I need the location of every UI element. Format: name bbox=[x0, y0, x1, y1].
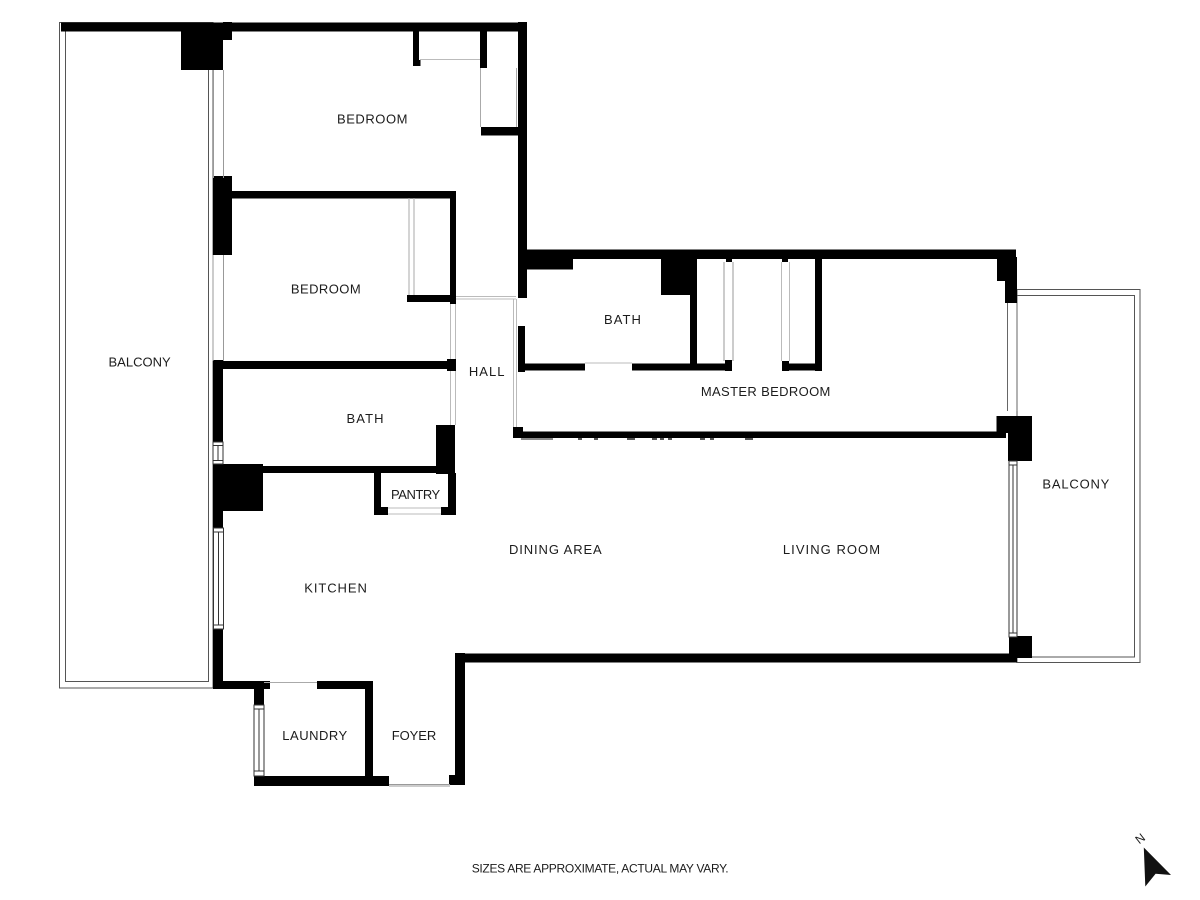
svg-text:BATH: BATH bbox=[347, 411, 385, 426]
svg-text:DINING AREA: DINING AREA bbox=[509, 542, 603, 557]
svg-text:HALL: HALL bbox=[469, 364, 506, 379]
svg-text:BEDROOM: BEDROOM bbox=[337, 112, 408, 127]
svg-text:KITCHEN: KITCHEN bbox=[304, 581, 368, 596]
svg-text:MASTER BEDROOM: MASTER BEDROOM bbox=[701, 384, 831, 399]
svg-text:FOYER: FOYER bbox=[392, 728, 437, 743]
svg-text:SIZES ARE APPROXIMATE, ACTUAL: SIZES ARE APPROXIMATE, ACTUAL MAY VARY. bbox=[472, 862, 729, 876]
svg-text:PANTRY: PANTRY bbox=[391, 487, 441, 502]
svg-text:LAUNDRY: LAUNDRY bbox=[282, 728, 347, 743]
svg-text:LIVING ROOM: LIVING ROOM bbox=[783, 542, 881, 557]
svg-text:BEDROOM: BEDROOM bbox=[291, 282, 361, 297]
svg-text:BATH: BATH bbox=[604, 312, 642, 327]
svg-text:BALCONY: BALCONY bbox=[1042, 477, 1110, 492]
svg-text:BALCONY: BALCONY bbox=[109, 354, 171, 369]
